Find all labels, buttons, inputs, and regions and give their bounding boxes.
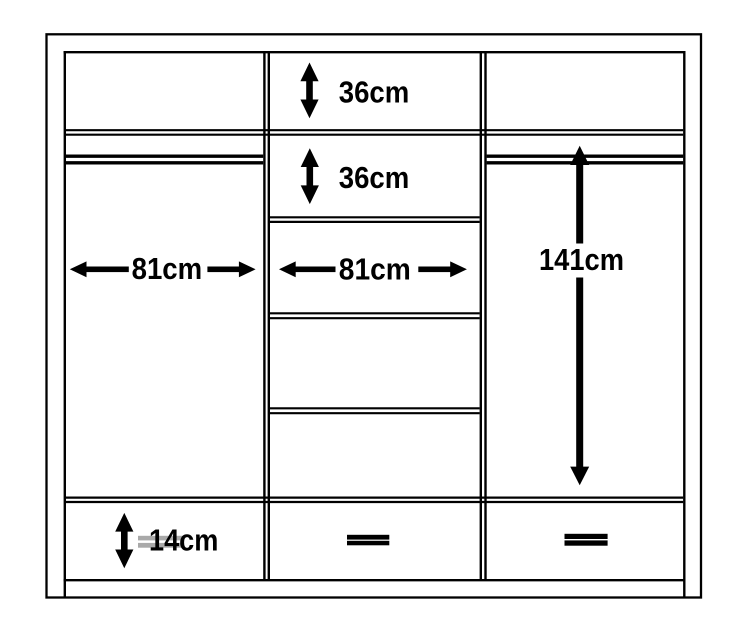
svg-text:36cm: 36cm: [339, 160, 410, 195]
svg-text:141cm: 141cm: [539, 242, 624, 277]
svg-text:14cm: 14cm: [149, 522, 218, 557]
svg-text:81cm: 81cm: [132, 251, 203, 286]
svg-text:36cm: 36cm: [339, 74, 410, 109]
svg-text:81cm: 81cm: [339, 251, 411, 286]
